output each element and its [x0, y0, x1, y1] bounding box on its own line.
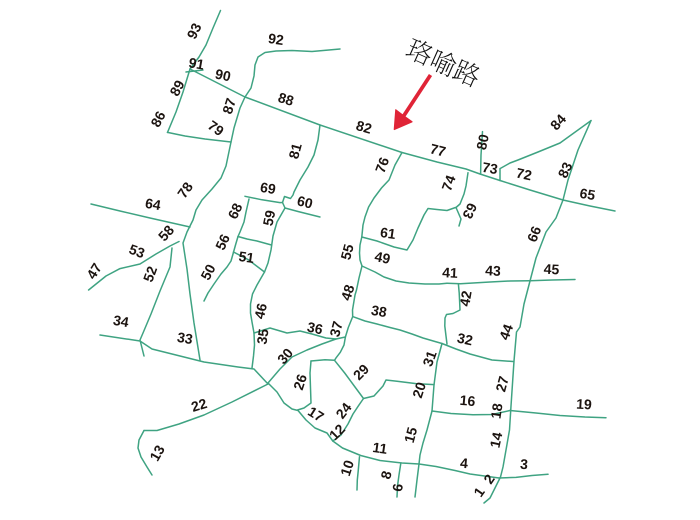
svg-text:53: 53	[127, 241, 147, 261]
svg-text:84: 84	[547, 111, 569, 133]
svg-text:93: 93	[183, 20, 204, 41]
svg-text:77: 77	[429, 140, 448, 159]
svg-text:86: 86	[147, 108, 169, 129]
svg-text:45: 45	[543, 261, 560, 278]
svg-text:22: 22	[189, 395, 209, 415]
svg-text:56: 56	[212, 231, 233, 252]
svg-text:20: 20	[409, 380, 429, 400]
svg-text:41: 41	[442, 264, 459, 281]
svg-text:36: 36	[306, 319, 325, 338]
svg-text:90: 90	[214, 66, 233, 85]
svg-text:91: 91	[187, 54, 205, 72]
svg-text:33: 33	[176, 329, 194, 347]
svg-text:46: 46	[251, 301, 270, 320]
svg-text:88: 88	[276, 89, 296, 109]
svg-text:19: 19	[576, 396, 593, 413]
svg-text:8: 8	[377, 469, 395, 481]
svg-text:64: 64	[144, 195, 162, 213]
svg-text:11: 11	[372, 439, 389, 457]
svg-text:66: 66	[524, 224, 545, 245]
svg-text:3: 3	[519, 456, 528, 473]
svg-text:92: 92	[267, 30, 285, 48]
svg-text:34: 34	[112, 312, 130, 330]
svg-text:38: 38	[370, 302, 388, 320]
svg-text:14: 14	[487, 431, 506, 450]
svg-text:89: 89	[166, 77, 188, 98]
svg-text:13: 13	[146, 442, 168, 464]
svg-text:59: 59	[260, 209, 279, 228]
svg-text:82: 82	[354, 117, 374, 137]
svg-text:1: 1	[470, 484, 488, 500]
svg-text:65: 65	[578, 185, 596, 203]
svg-text:61: 61	[379, 224, 397, 242]
svg-text:55: 55	[337, 242, 357, 261]
svg-text:52: 52	[140, 264, 160, 284]
svg-text:72: 72	[515, 165, 534, 184]
svg-text:37: 37	[326, 319, 346, 338]
svg-text:81: 81	[285, 141, 305, 160]
svg-text:63: 63	[459, 201, 480, 222]
svg-text:73: 73	[481, 159, 499, 177]
svg-text:50: 50	[197, 261, 219, 282]
svg-text:4: 4	[459, 455, 468, 472]
svg-text:79: 79	[205, 117, 227, 139]
svg-text:12: 12	[326, 421, 348, 443]
svg-text:76: 76	[372, 155, 392, 175]
svg-text:58: 58	[155, 222, 177, 244]
svg-text:83: 83	[554, 159, 575, 180]
svg-text:60: 60	[296, 192, 315, 211]
svg-text:35: 35	[253, 327, 271, 345]
svg-text:26: 26	[290, 372, 310, 392]
svg-text:16: 16	[459, 392, 476, 409]
svg-text:69: 69	[259, 179, 277, 197]
svg-text:18: 18	[487, 402, 505, 420]
svg-text:68: 68	[224, 200, 245, 221]
svg-text:27: 27	[492, 374, 512, 393]
svg-text:43: 43	[485, 262, 502, 279]
svg-text:87: 87	[219, 96, 239, 116]
svg-text:15: 15	[401, 425, 421, 444]
svg-text:2: 2	[480, 471, 498, 487]
svg-text:6: 6	[389, 482, 406, 493]
svg-text:10: 10	[337, 458, 357, 478]
svg-text:42: 42	[456, 289, 474, 307]
svg-text:80: 80	[473, 133, 492, 152]
svg-text:49: 49	[373, 248, 392, 267]
svg-text:51: 51	[238, 248, 256, 266]
svg-text:29: 29	[350, 361, 372, 383]
svg-text:44: 44	[496, 322, 516, 342]
svg-text:74: 74	[438, 173, 458, 193]
svg-text:78: 78	[174, 179, 196, 201]
svg-text:30: 30	[274, 345, 296, 367]
svg-text:32: 32	[456, 330, 475, 349]
